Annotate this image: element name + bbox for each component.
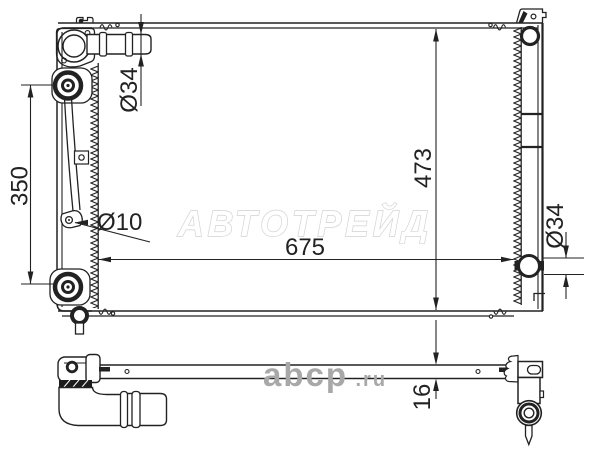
left-fin-band bbox=[90, 66, 98, 308]
support-strut bbox=[61, 98, 89, 228]
right-lower-block bbox=[518, 378, 540, 404]
side-bushing bbox=[67, 362, 77, 372]
castellated-tab bbox=[504, 356, 518, 383]
radiator-technical-drawing: АВТОТРЕЙД 350 Ø34 Ø10 4 bbox=[0, 0, 600, 450]
outlet-hose-nipple bbox=[122, 394, 167, 426]
strut-foot bbox=[61, 211, 82, 228]
side-pin bbox=[99, 367, 110, 372]
bracket-hole bbox=[531, 14, 536, 19]
side-right-assembly bbox=[499, 356, 544, 445]
body-hole bbox=[125, 370, 129, 374]
dim-core-width-label: 675 bbox=[285, 234, 325, 261]
nipple-ridge bbox=[121, 392, 128, 428]
lower-mount-bushing bbox=[50, 269, 90, 305]
dim-outlet-diameter-label: Ø34 bbox=[542, 203, 569, 248]
inlet-pipe-assembly bbox=[57, 29, 152, 67]
upper-mount-bushing bbox=[52, 68, 92, 103]
pipe-collar bbox=[126, 33, 133, 57]
dim-outlet-diameter: Ø34 bbox=[542, 203, 584, 299]
dim-mount-span: 350 bbox=[7, 85, 55, 284]
dim-inlet-diameter-label: Ø34 bbox=[116, 67, 143, 112]
watermark-site: abcp .ru bbox=[263, 356, 387, 393]
pipe-collar bbox=[100, 33, 107, 57]
dim-mount-span-label: 350 bbox=[7, 166, 34, 206]
nipple-ridge bbox=[132, 392, 140, 428]
dim-mount-hole-label: Ø10 bbox=[97, 209, 142, 236]
dim-core-thickness-label: 16 bbox=[409, 384, 436, 411]
inlet-elbow-inner bbox=[63, 35, 85, 57]
side-outlet-fitting bbox=[519, 256, 540, 277]
drain-pin bbox=[526, 426, 533, 445]
dim-core-width: 675 bbox=[99, 234, 514, 262]
break-marks bbox=[99, 23, 506, 318]
watermark-site-tld: .ru bbox=[355, 369, 387, 391]
outlet-elbow bbox=[59, 388, 122, 426]
dim-mount-hole: Ø10 bbox=[75, 209, 150, 242]
dim-core-height: 473 bbox=[410, 29, 439, 310]
block-nub bbox=[540, 391, 544, 398]
body-hole bbox=[476, 370, 480, 374]
filler-neck bbox=[522, 28, 539, 45]
dim-inlet-diameter: Ø34 bbox=[116, 14, 144, 113]
block-slot bbox=[528, 366, 541, 375]
front-view bbox=[50, 9, 546, 334]
watermark-site-name: abcp bbox=[263, 356, 348, 393]
radiator-part-diagram: АВТОТРЕЙД 350 Ø34 Ø10 4 bbox=[0, 0, 600, 450]
dim-core-height-label: 473 bbox=[410, 148, 437, 188]
drain-plug bbox=[72, 308, 87, 334]
strut-mid-bracket bbox=[75, 151, 89, 164]
side-left-tab bbox=[86, 355, 100, 383]
